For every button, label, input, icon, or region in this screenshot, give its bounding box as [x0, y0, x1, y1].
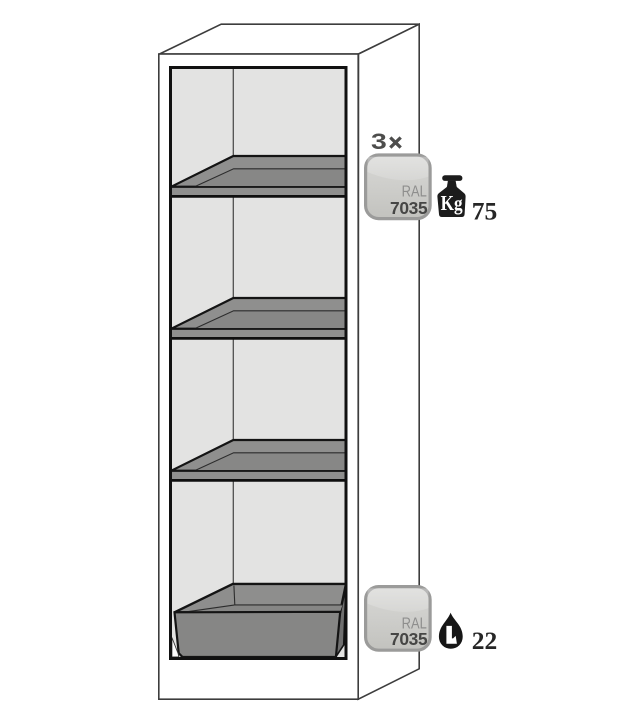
svg-text:Kg: Kg [441, 192, 463, 215]
svg-text:22: 22 [472, 626, 498, 655]
svg-text:7035: 7035 [390, 629, 428, 649]
svg-text:75: 75 [472, 197, 498, 226]
svg-text:7035: 7035 [390, 198, 428, 218]
svg-text:3: 3 [371, 130, 387, 155]
